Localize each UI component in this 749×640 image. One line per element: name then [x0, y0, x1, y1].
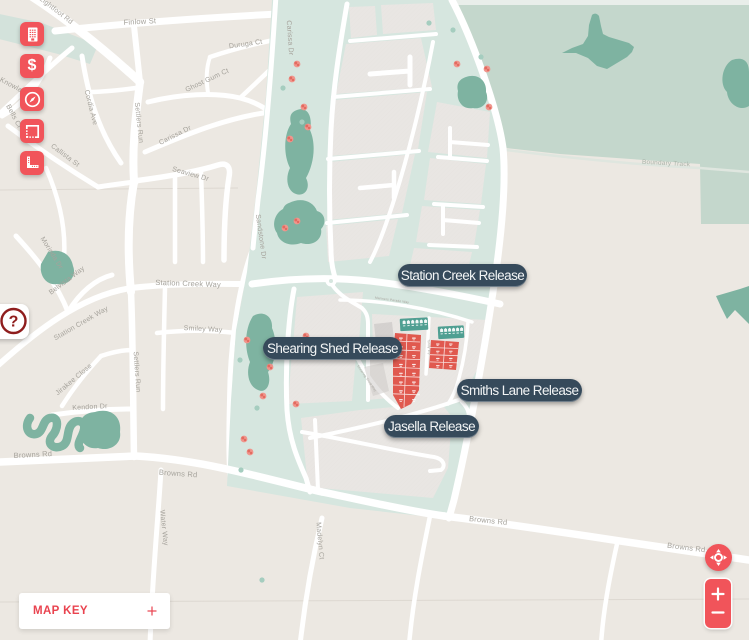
svg-text:Tandy Wy: Tandy Wy [427, 339, 432, 355]
svg-text:Finlow St: Finlow St [123, 16, 157, 27]
svg-text:?: ? [9, 314, 19, 331]
